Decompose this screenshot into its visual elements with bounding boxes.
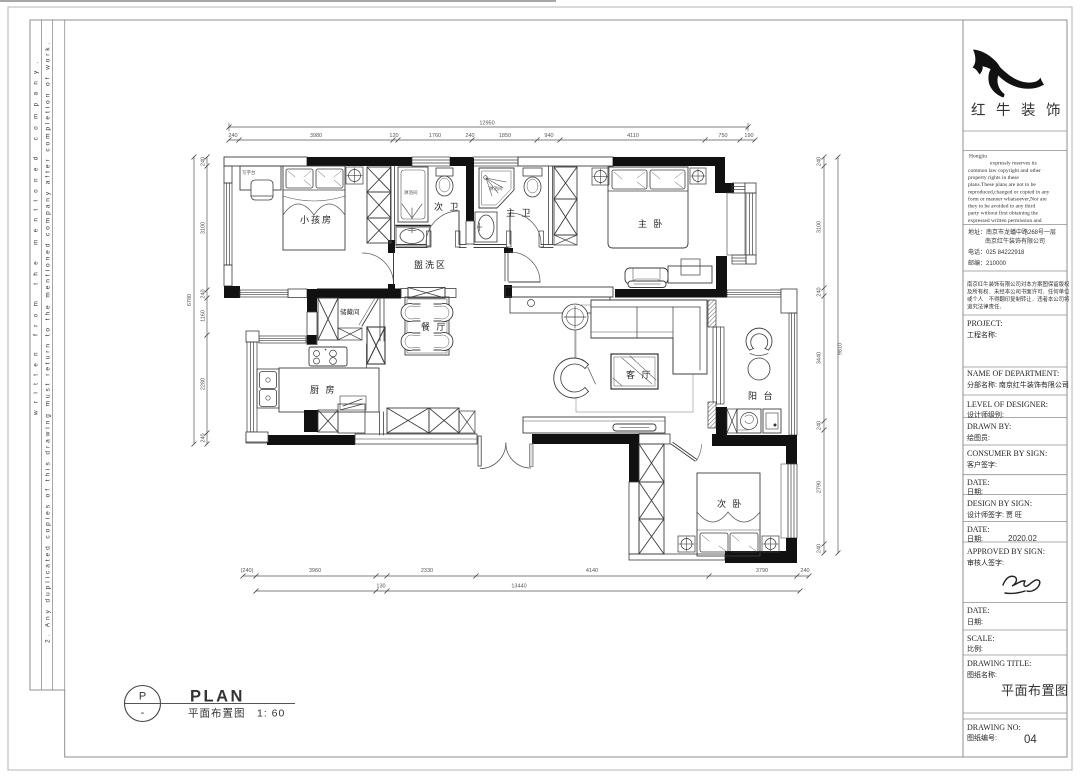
svg-text:NAME OF DEPARTMENT:: NAME OF DEPARTMENT: <box>967 369 1059 378</box>
svg-text:3790: 3790 <box>756 568 768 574</box>
svg-text:餐 厅: 餐 厅 <box>421 321 448 332</box>
svg-text:分部名称: 南京红牛装饰有限公司: 分部名称: 南京红牛装饰有限公司 <box>967 380 1069 389</box>
svg-text:240: 240 <box>201 433 207 442</box>
svg-text:240: 240 <box>465 133 474 139</box>
svg-text:240: 240 <box>228 133 237 139</box>
svg-text:平面布置图: 平面布置图 <box>1001 683 1069 698</box>
svg-text:party without first obtaining: party without first obtaining the <box>968 210 1039 217</box>
svg-text:-: - <box>141 707 145 719</box>
svg-text:客户签字:: 客户签字: <box>967 460 997 469</box>
svg-text:2020.02: 2020.02 <box>1008 534 1037 543</box>
svg-text:DRAWING NO:: DRAWING NO: <box>967 723 1021 732</box>
svg-text:南京红牛装饰有限公司: 南京红牛装饰有限公司 <box>985 237 1045 245</box>
svg-text:240: 240 <box>201 289 207 298</box>
svg-text:客 厅: 客 厅 <box>626 369 653 380</box>
svg-text:追究法律责任．: 追究法律责任． <box>967 303 1005 311</box>
svg-text:小孩房: 小孩房 <box>300 214 333 225</box>
svg-text:6780: 6780 <box>187 294 193 306</box>
svg-text:…: … <box>340 362 345 368</box>
svg-text:审核人签字:: 审核人签字: <box>967 558 1004 567</box>
svg-text:4110: 4110 <box>627 133 639 139</box>
svg-text:(240): (240) <box>241 568 254 574</box>
svg-text:绘图员:: 绘图员: <box>967 433 990 442</box>
svg-text:DRAWING TITLE:: DRAWING TITLE: <box>967 659 1031 668</box>
svg-text:DATE:: DATE: <box>967 606 990 615</box>
svg-text:reproduced,changed or copied i: reproduced,changed or copied in any <box>968 189 1050 195</box>
svg-text:盥洗区: 盥洗区 <box>414 259 447 270</box>
svg-text:3100: 3100 <box>201 222 207 234</box>
svg-text:1160: 1160 <box>201 310 207 322</box>
svg-text:common law copyright and other: common law copyright and other <box>968 168 1041 174</box>
svg-text:3440: 3440 <box>817 352 823 364</box>
svg-text:储藏间: 储藏间 <box>340 307 360 316</box>
svg-text:1850: 1850 <box>499 133 511 139</box>
svg-text:P: P <box>139 691 146 703</box>
svg-text:邮编：210000: 邮编：210000 <box>968 259 1007 267</box>
svg-text:3100: 3100 <box>817 221 823 233</box>
svg-text:工程名称:: 工程名称: <box>967 330 997 339</box>
svg-text:Hongjiu: Hongjiu <box>969 154 987 160</box>
svg-text:they to be avoided to any thi: they to be avoided to any third <box>968 204 1035 210</box>
svg-text:240: 240 <box>800 568 809 574</box>
svg-text:APPROVED BY SIGN:: APPROVED BY SIGN: <box>967 547 1045 556</box>
svg-text:expressly reserves its: expressly reserves its <box>990 161 1037 167</box>
svg-text:设计师级别:: 设计师级别: <box>967 410 1004 419</box>
svg-text:厨 房: 厨 房 <box>310 384 337 395</box>
svg-text:地址：南京市龙蟠中路268号一层: 地址：南京市龙蟠中路268号一层 <box>968 228 1056 236</box>
svg-text:240: 240 <box>817 544 823 553</box>
svg-text:240: 240 <box>201 157 207 166</box>
svg-text:190: 190 <box>744 133 753 139</box>
svg-text:次 卫: 次 卫 <box>434 201 461 212</box>
svg-text:130: 130 <box>376 584 385 590</box>
svg-text:设计师签字: 贾 旺: 设计师签字: 贾 旺 <box>967 510 1022 519</box>
svg-text:3980: 3980 <box>310 133 322 139</box>
svg-text:3960: 3960 <box>309 568 321 574</box>
svg-text:南京红牛装饰有限公司对本方案图保留版权: 南京红牛装饰有限公司对本方案图保留版权 <box>967 280 1070 288</box>
svg-text:940: 940 <box>544 133 553 139</box>
svg-text:日期:: 日期: <box>967 488 983 496</box>
svg-text:13440: 13440 <box>511 584 526 590</box>
svg-text:平面布置图 1: 60: 平面布置图 1: 60 <box>188 708 285 720</box>
svg-text:阳 台: 阳 台 <box>748 390 775 401</box>
svg-text:2790: 2790 <box>817 481 823 493</box>
svg-text:4140: 4140 <box>586 568 598 574</box>
svg-text:PROJECT:: PROJECT: <box>967 319 1003 328</box>
svg-text:written from the mentioned com: written from the mentioned company, <box>33 55 40 416</box>
svg-text:1760: 1760 <box>429 133 441 139</box>
svg-text:plans.These plans are not to b: plans.These plans are not to be <box>968 182 1036 188</box>
svg-text:2280: 2280 <box>201 378 207 390</box>
svg-text:2. Any duplicated copies of th: 2. Any duplicated copies of this drawing… <box>45 40 52 643</box>
svg-text:expressed written permission a: expressed written permission and <box>968 218 1042 224</box>
svg-text:DRAWN BY:: DRAWN BY: <box>967 422 1011 431</box>
svg-text:或个人 不得翻印复制转让．违者本公司将: 或个人 不得翻印复制转让．违者本公司将 <box>967 295 1070 303</box>
svg-text:日期:: 日期: <box>967 535 983 543</box>
svg-text:9810: 9810 <box>838 343 844 355</box>
svg-text:比例:: 比例: <box>967 644 983 653</box>
svg-text:240: 240 <box>817 421 823 430</box>
svg-text:240: 240 <box>817 157 823 166</box>
svg-text:2330: 2330 <box>421 568 433 574</box>
svg-text:淋浴间: 淋浴间 <box>404 189 418 196</box>
svg-text:电话：025 84222918: 电话：025 84222918 <box>968 248 1025 256</box>
svg-text:日期:: 日期: <box>967 618 983 626</box>
svg-text:04: 04 <box>1024 734 1037 746</box>
svg-text:DATE:: DATE: <box>967 478 990 487</box>
svg-text:LEVEL OF DESIGNER:: LEVEL OF DESIGNER: <box>967 400 1048 409</box>
svg-text:PLAN: PLAN <box>190 688 245 706</box>
svg-text:图纸编号:: 图纸编号: <box>967 733 997 742</box>
svg-text:DESIGN BY SIGN:: DESIGN BY SIGN: <box>967 499 1032 508</box>
svg-text:form or manner whatsoever,Nor: form or manner whatsoever,Nor are <box>968 195 1047 202</box>
svg-text:CONSUMER BY SIGN:: CONSUMER BY SIGN: <box>967 449 1047 458</box>
svg-text:12950: 12950 <box>479 121 494 127</box>
svg-text:图纸名称:: 图纸名称: <box>967 670 997 679</box>
svg-text:property rights in these: property rights in these <box>968 175 1019 181</box>
svg-text:SCALE:: SCALE: <box>967 634 995 643</box>
svg-text:及所有权．未经本公司书面许可．任何单位: 及所有权．未经本公司书面许可．任何单位 <box>967 288 1070 296</box>
svg-text:主 卧: 主 卧 <box>638 218 665 229</box>
svg-text:120: 120 <box>389 133 398 139</box>
svg-text:主 卫: 主 卫 <box>506 207 533 218</box>
svg-text:红牛装饰: 红牛装饰 <box>971 102 1071 119</box>
svg-text:750: 750 <box>718 133 727 139</box>
svg-text:240: 240 <box>817 287 823 296</box>
svg-text:淋浴间: 淋浴间 <box>489 185 503 192</box>
svg-text:次 卧: 次 卧 <box>717 498 744 509</box>
svg-text:DATE:: DATE: <box>967 525 990 534</box>
svg-text:写字台: 写字台 <box>242 169 256 176</box>
